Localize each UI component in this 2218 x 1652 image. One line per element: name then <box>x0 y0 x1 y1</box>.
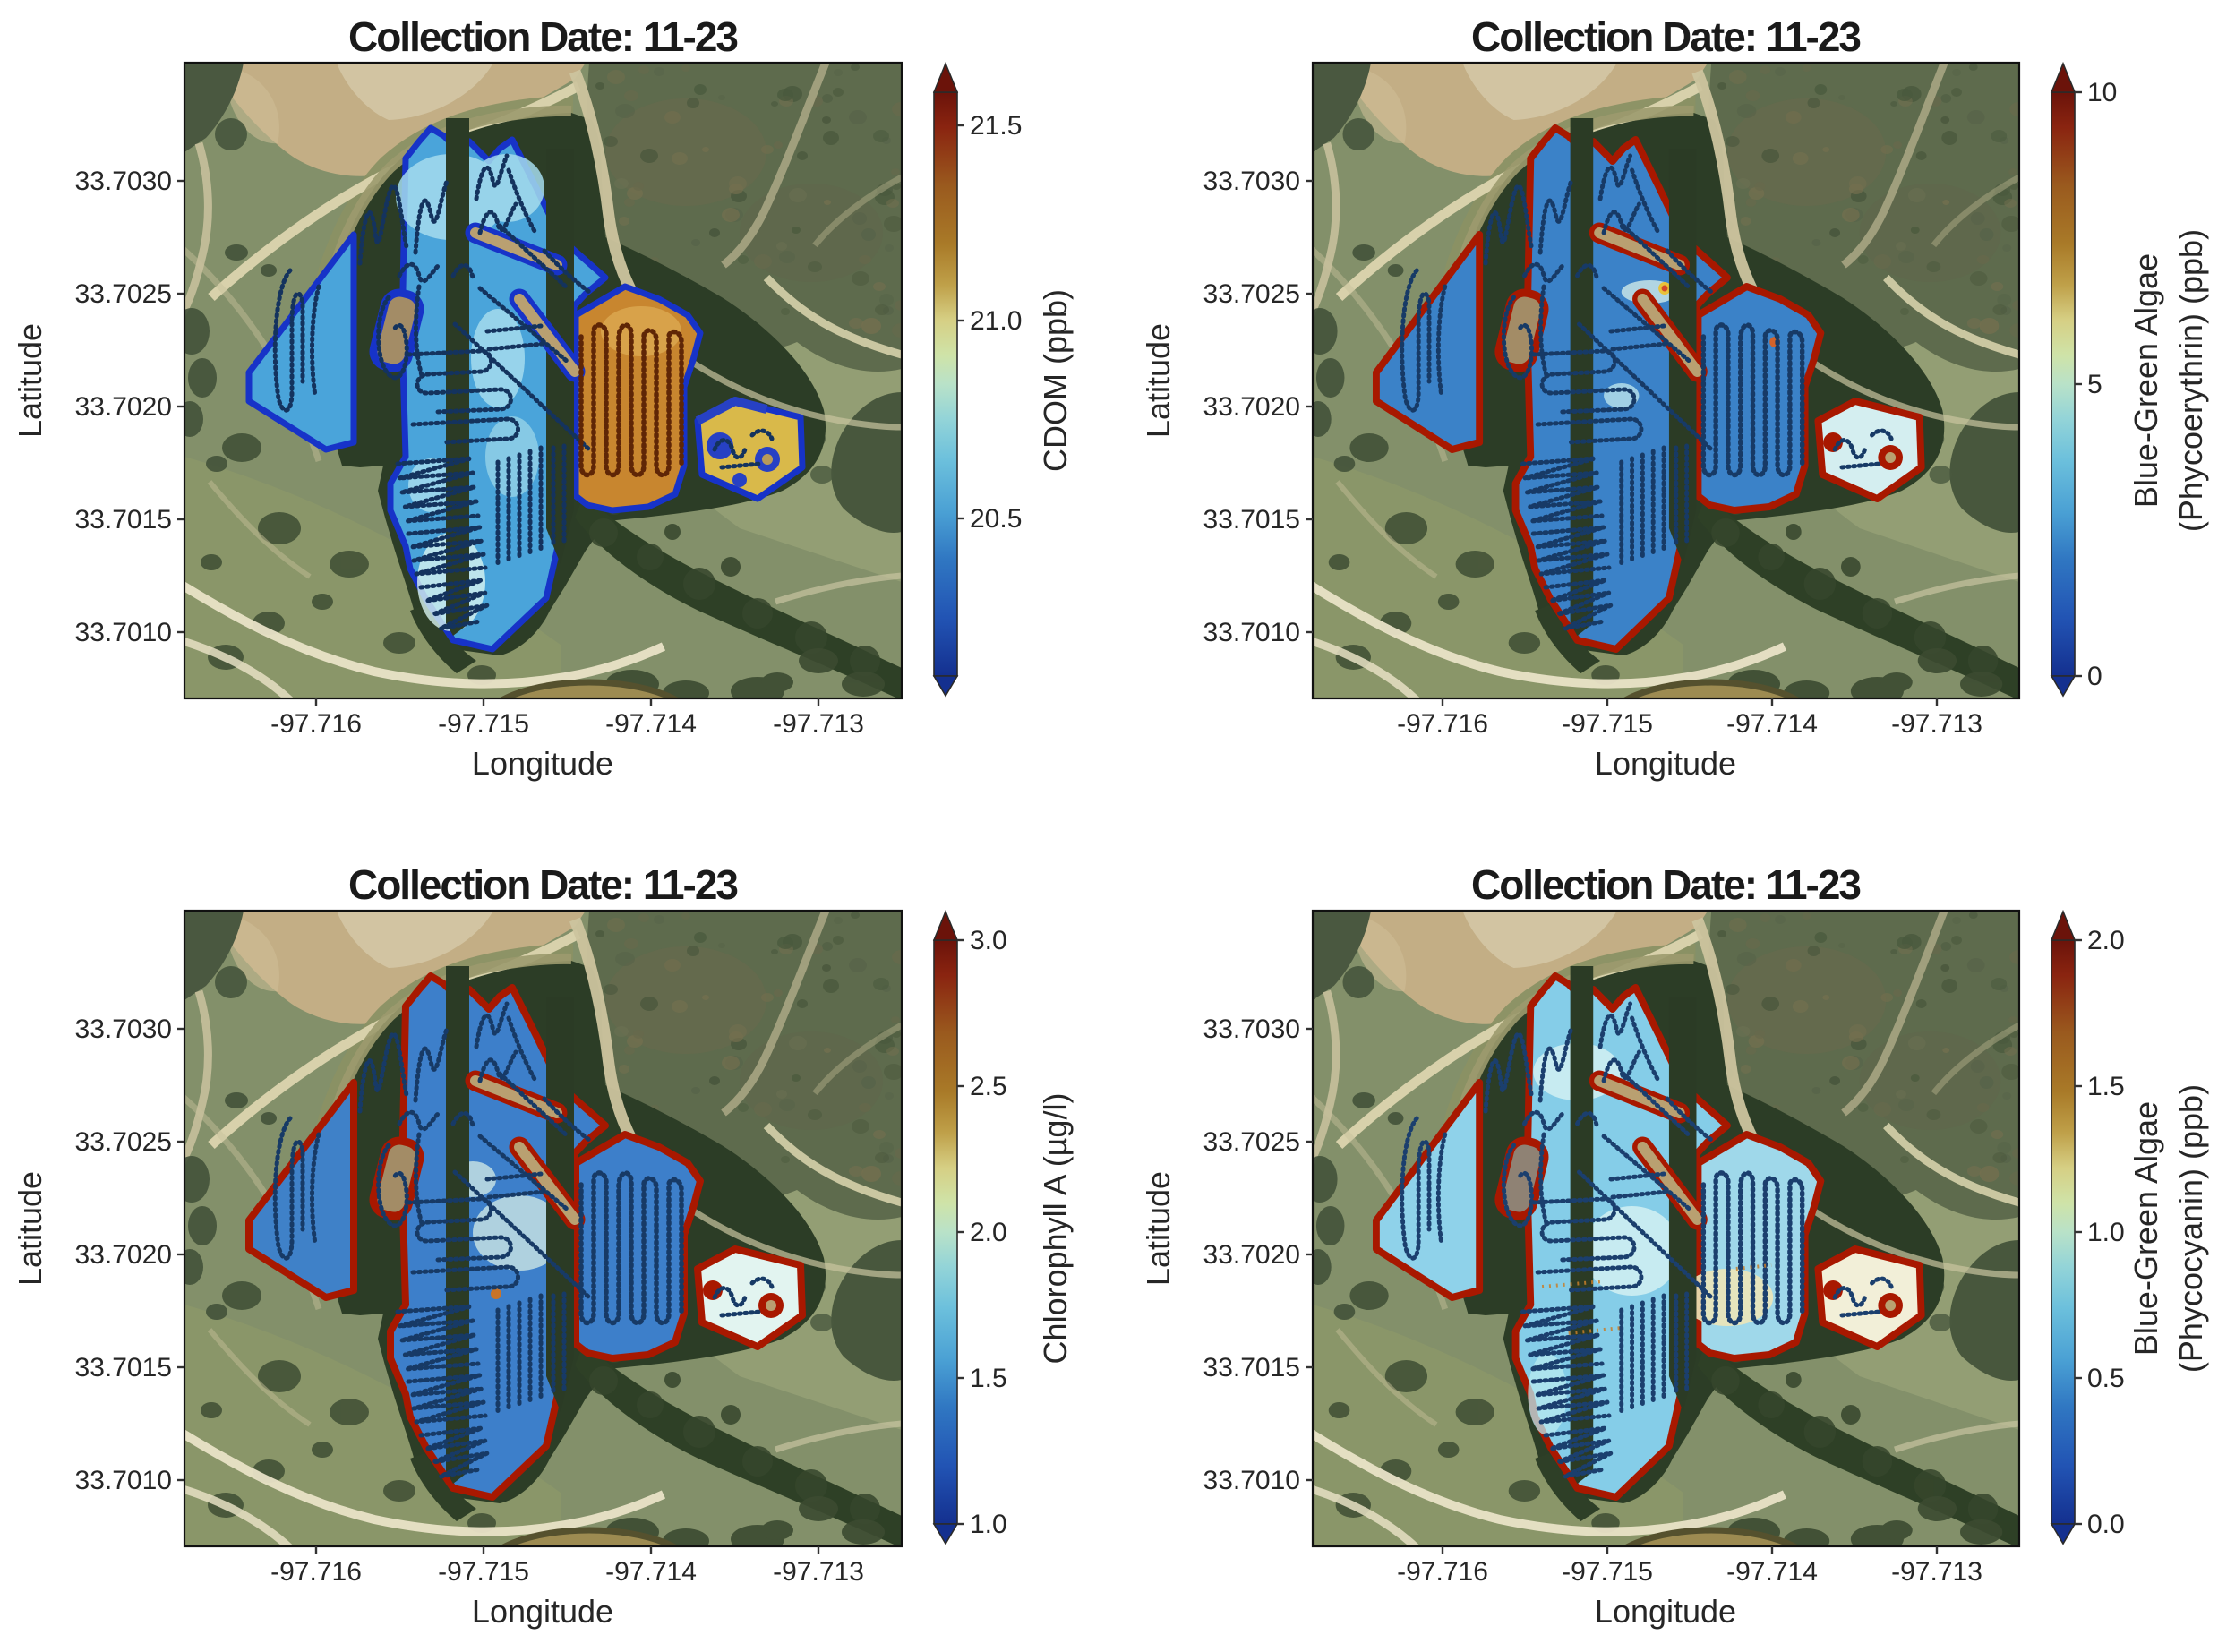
svg-text:-97.713: -97.713 <box>1891 709 1982 739</box>
svg-text:Latitude: Latitude <box>1140 1171 1177 1286</box>
svg-text:1.0: 1.0 <box>2087 1218 2125 1247</box>
svg-text:-97.715: -97.715 <box>438 1557 529 1587</box>
svg-text:-97.714: -97.714 <box>605 1557 697 1587</box>
svg-text:33.7015: 33.7015 <box>1203 505 1300 535</box>
svg-text:-97.713: -97.713 <box>1891 1557 1982 1587</box>
svg-text:2.0: 2.0 <box>970 1218 1007 1247</box>
svg-text:-97.716: -97.716 <box>270 1557 362 1587</box>
svg-text:0.5: 0.5 <box>2087 1364 2125 1393</box>
svg-text:Collection Date: 11-23: Collection Date: 11-23 <box>1471 13 1860 60</box>
svg-text:-97.714: -97.714 <box>605 709 697 739</box>
svg-text:-97.715: -97.715 <box>1562 709 1653 739</box>
svg-text:2.5: 2.5 <box>970 1072 1007 1101</box>
svg-text:33.7025: 33.7025 <box>75 1127 172 1157</box>
svg-text:21.5: 21.5 <box>970 111 1022 141</box>
svg-text:Longitude: Longitude <box>1595 1593 1736 1630</box>
svg-text:3.0: 3.0 <box>970 926 1007 955</box>
svg-text:33.7010: 33.7010 <box>1203 618 1300 647</box>
svg-text:0: 0 <box>2087 662 2102 691</box>
svg-text:33.7030: 33.7030 <box>1203 1014 1300 1044</box>
svg-text:33.7010: 33.7010 <box>1203 1466 1300 1495</box>
svg-text:33.7015: 33.7015 <box>75 505 172 535</box>
svg-text:-97.715: -97.715 <box>1562 1557 1653 1587</box>
svg-text:5: 5 <box>2087 370 2102 399</box>
svg-text:20.5: 20.5 <box>970 504 1022 534</box>
svg-text:Longitude: Longitude <box>1595 745 1736 782</box>
svg-text:-97.716: -97.716 <box>1397 709 1488 739</box>
svg-text:21.0: 21.0 <box>970 306 1022 336</box>
svg-text:-97.716: -97.716 <box>270 709 362 739</box>
svg-text:CDOM (ppb): CDOM (ppb) <box>1037 289 1074 472</box>
svg-text:33.7015: 33.7015 <box>1203 1353 1300 1382</box>
svg-text:-97.713: -97.713 <box>773 709 864 739</box>
svg-text:33.7030: 33.7030 <box>75 1014 172 1044</box>
svg-text:Blue-Green Algae: Blue-Green Algae <box>2128 1101 2164 1356</box>
svg-text:33.7020: 33.7020 <box>1203 1240 1300 1270</box>
svg-text:33.7020: 33.7020 <box>75 392 172 422</box>
svg-text:-97.714: -97.714 <box>1726 709 1818 739</box>
svg-text:(Phycoerythrin) (ppb): (Phycoerythrin) (ppb) <box>2172 229 2209 532</box>
svg-text:33.7020: 33.7020 <box>1203 392 1300 422</box>
svg-text:Longitude: Longitude <box>472 745 613 782</box>
svg-text:Blue-Green Algae: Blue-Green Algae <box>2128 253 2164 508</box>
svg-text:33.7020: 33.7020 <box>75 1240 172 1270</box>
svg-text:Collection Date: 11-23: Collection Date: 11-23 <box>348 13 737 60</box>
svg-text:33.7025: 33.7025 <box>1203 279 1300 309</box>
svg-text:1.5: 1.5 <box>2087 1072 2125 1101</box>
svg-text:33.7030: 33.7030 <box>75 167 172 196</box>
svg-text:-97.714: -97.714 <box>1726 1557 1818 1587</box>
svg-text:Collection Date: 11-23: Collection Date: 11-23 <box>348 861 737 908</box>
svg-text:Collection Date: 11-23: Collection Date: 11-23 <box>1471 861 1860 908</box>
svg-text:(Phycocyanin) (ppb): (Phycocyanin) (ppb) <box>2172 1084 2209 1373</box>
svg-text:10: 10 <box>2087 78 2117 107</box>
svg-text:1.0: 1.0 <box>970 1510 1007 1539</box>
svg-text:33.7015: 33.7015 <box>75 1353 172 1382</box>
svg-text:33.7025: 33.7025 <box>1203 1127 1300 1157</box>
svg-text:Longitude: Longitude <box>472 1593 613 1630</box>
svg-text:33.7010: 33.7010 <box>75 1466 172 1495</box>
svg-text:33.7010: 33.7010 <box>75 618 172 647</box>
svg-text:Latitude: Latitude <box>12 323 48 438</box>
svg-text:2.0: 2.0 <box>2087 926 2125 955</box>
svg-text:33.7025: 33.7025 <box>75 279 172 309</box>
svg-text:0.0: 0.0 <box>2087 1510 2125 1539</box>
svg-text:Latitude: Latitude <box>1140 323 1177 438</box>
svg-text:Chlorophyll A (µg/l): Chlorophyll A (µg/l) <box>1037 1093 1074 1365</box>
svg-text:-97.716: -97.716 <box>1397 1557 1488 1587</box>
svg-text:1.5: 1.5 <box>970 1364 1007 1393</box>
svg-text:-97.713: -97.713 <box>773 1557 864 1587</box>
svg-text:33.7030: 33.7030 <box>1203 167 1300 196</box>
svg-text:Latitude: Latitude <box>12 1171 48 1286</box>
svg-text:-97.715: -97.715 <box>438 709 529 739</box>
